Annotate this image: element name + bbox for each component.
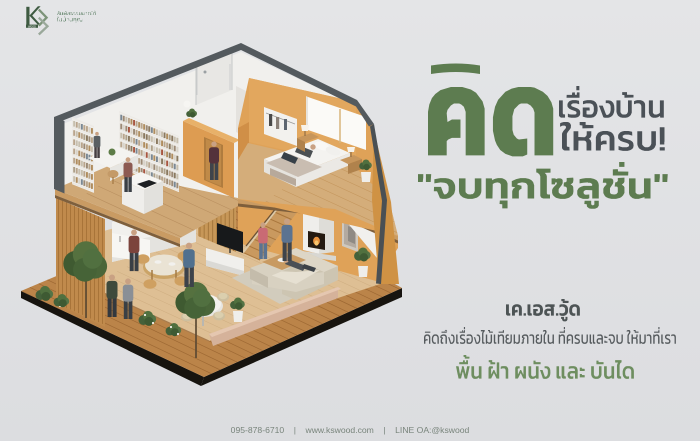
svg-text:WOOD: WOOD bbox=[28, 25, 36, 28]
svg-text:095-878-6710 | www.kswoo: 095-878-6710 | www.kswood.com | LINE OA:… bbox=[231, 425, 470, 435]
